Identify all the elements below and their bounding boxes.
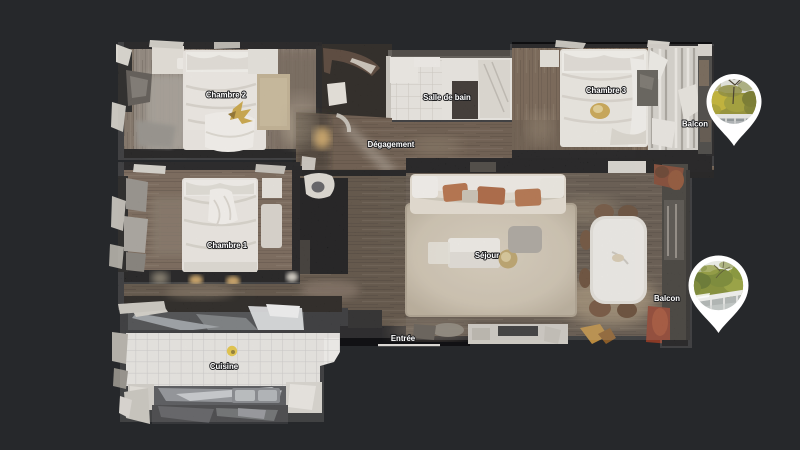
svg-text:Chambre 3: Chambre 3 [586,86,627,95]
svg-text:Salle de bain: Salle de bain [423,93,471,102]
svg-text:Dégagement: Dégagement [368,140,415,149]
svg-text:Chambre 1: Chambre 1 [207,241,248,250]
svg-text:Cuisine: Cuisine [210,362,239,371]
svg-text:Chambre 2: Chambre 2 [206,91,247,100]
svg-text:Balcon: Balcon [654,294,680,303]
svg-text:Séjour: Séjour [475,251,499,260]
svg-text:Entrée: Entrée [391,334,416,343]
svg-text:Balcon: Balcon [682,120,708,129]
